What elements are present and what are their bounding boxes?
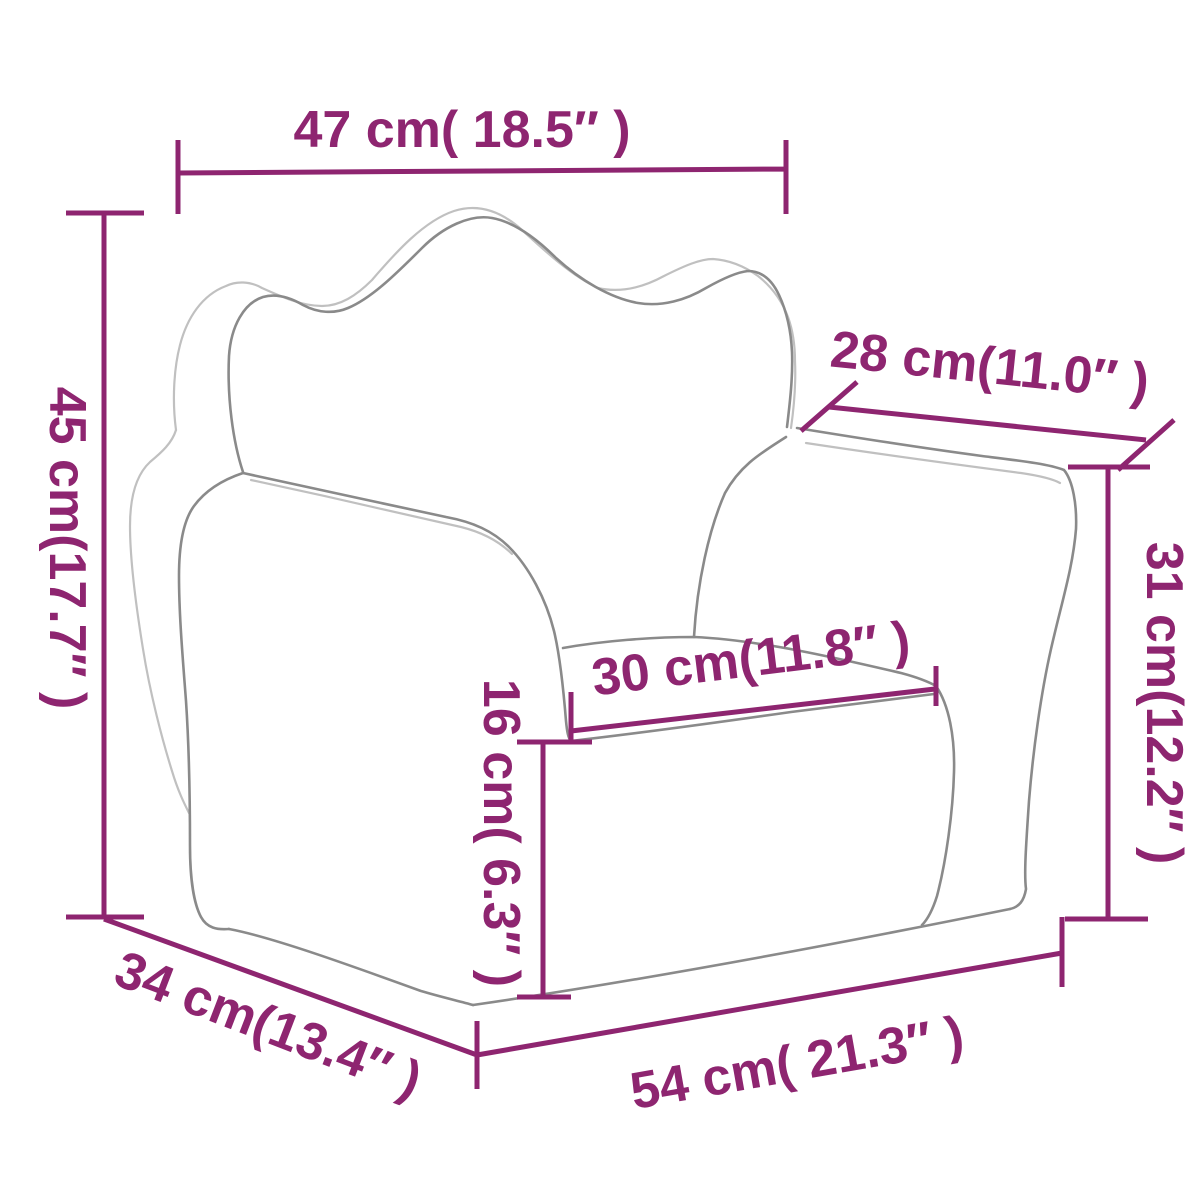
dimension-diagram-page: 47 cm( 18.5″ ) 45 cm(17.7″ ) 28 cm(11.0″… xyxy=(0,0,1200,1200)
dim-base-depth: 34 cm(13.4″ ) xyxy=(104,919,477,1110)
left-arm-front-contour xyxy=(179,473,243,929)
dim-back-width-label: 47 cm( 18.5″ ) xyxy=(293,101,630,159)
dim-base-depth-label: 34 cm(13.4″ ) xyxy=(107,940,429,1110)
base-front-bottom-edge xyxy=(473,909,1010,1005)
left-arm-inner-ridge-2 xyxy=(251,480,512,554)
dim-base-width-label: 54 cm( 21.3″ ) xyxy=(626,1005,968,1121)
dim-seat-width-label: 30 cm(11.8″ ) xyxy=(589,611,913,708)
dim-arm-depth-label: 28 cm(11.0″ ) xyxy=(828,321,1152,412)
dim-arm-height: 31 cm(12.2″ ) xyxy=(1065,467,1193,919)
dim-base-width-lines xyxy=(477,917,1062,1055)
dim-seat-front-height-label: 16 cm( 6.3″ ) xyxy=(472,679,530,987)
dim-arm-depth: 28 cm(11.0″ ) xyxy=(801,321,1174,470)
backrest-front-contour xyxy=(229,217,793,472)
dim-seat-front-height: 16 cm( 6.3″ ) xyxy=(472,679,592,997)
dim-back-height-label: 45 cm(17.7″ ) xyxy=(38,387,96,710)
backrest-outer-contour xyxy=(174,208,795,430)
dim-back-height: 45 cm(17.7″ ) xyxy=(38,213,144,917)
armchair-dimension-diagram: 47 cm( 18.5″ ) 45 cm(17.7″ ) 28 cm(11.0″… xyxy=(0,0,1200,1200)
dim-base-width: 54 cm( 21.3″ ) xyxy=(477,917,1062,1121)
dim-arm-height-label: 31 cm(12.2″ ) xyxy=(1135,542,1193,865)
chair-outline xyxy=(130,208,1076,1005)
dim-back-width: 47 cm( 18.5″ ) xyxy=(178,101,786,214)
right-arm-inner-edge xyxy=(922,686,954,925)
dimension-annotations: 47 cm( 18.5″ ) 45 cm(17.7″ ) 28 cm(11.0″… xyxy=(38,101,1193,1121)
dim-seat-width: 30 cm(11.8″ ) xyxy=(571,611,936,740)
backrest-right-seam xyxy=(694,437,786,637)
